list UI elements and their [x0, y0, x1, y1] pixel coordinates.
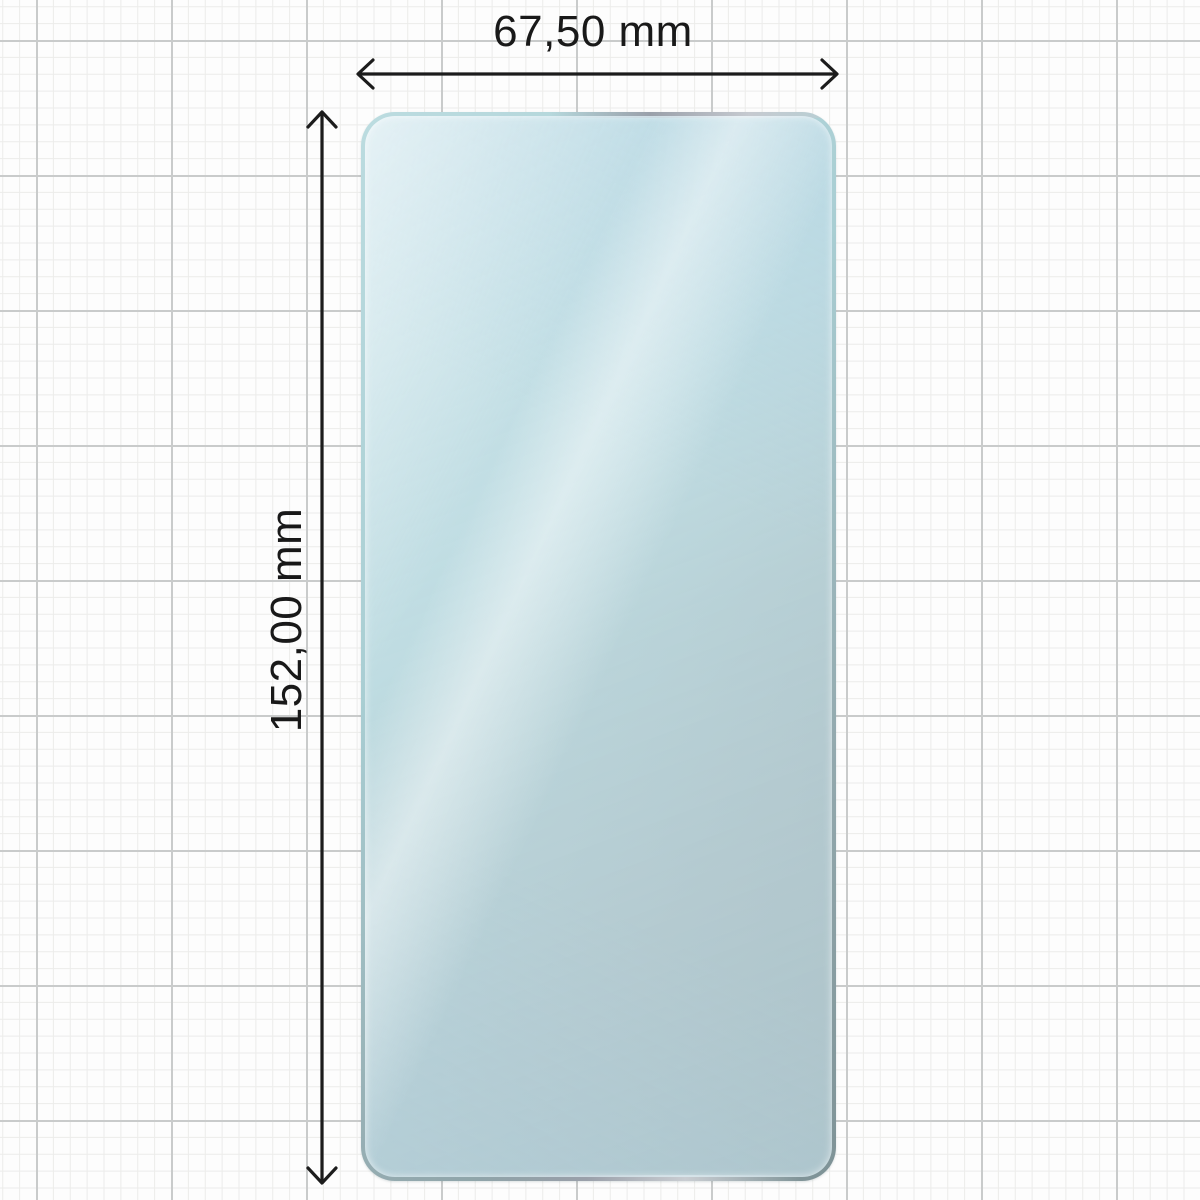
height-dimension-label: 152,00 mm: [265, 508, 309, 733]
width-dimension-label: 67,50 mm: [493, 10, 693, 54]
dimension-diagram: 67,50 mm 152,00 mm: [0, 0, 1200, 1200]
screen-protector-film: [361, 112, 836, 1181]
film-surface-reflections: [365, 116, 832, 1177]
